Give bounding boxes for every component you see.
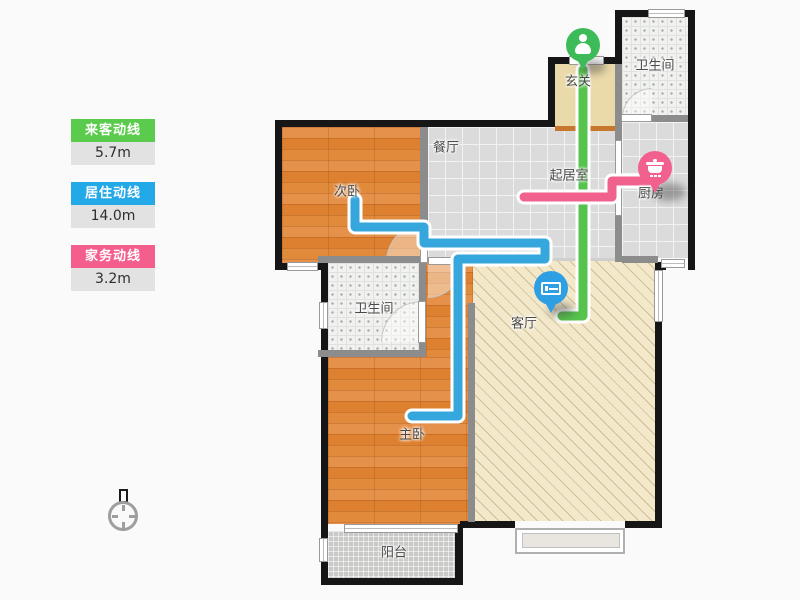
legend-living-label: 居住动线 <box>71 182 155 205</box>
compass-circle <box>108 501 138 531</box>
legend-guest-line[interactable]: 来客动线 5.7m <box>71 119 155 165</box>
entrance-marker[interactable] <box>566 28 600 74</box>
legend-living-line[interactable]: 居住动线 14.0m <box>71 182 155 228</box>
legend-living-length: 14.0m <box>71 205 155 228</box>
bed-icon <box>534 271 568 305</box>
legend-guest-length: 5.7m <box>71 142 155 165</box>
pot-icon <box>638 151 672 185</box>
floor-plan-app: 来客动线 5.7m 居住动线 14.0m 家务动线 3.2m <box>0 0 800 600</box>
room-label-bathroom-top: 卫生间 <box>635 55 674 74</box>
room-label-dining: 餐厅 <box>433 137 459 156</box>
living-route-marker[interactable] <box>534 271 568 317</box>
room-label-bathroom-mid: 卫生间 <box>354 298 393 317</box>
legend-housework-line[interactable]: 家务动线 3.2m <box>71 245 155 291</box>
legend-housework-length: 3.2m <box>71 268 155 291</box>
legend-guest-label: 来客动线 <box>71 119 155 142</box>
kitchen-marker[interactable] <box>638 151 672 197</box>
room-label-second-bedroom: 次卧 <box>334 181 360 200</box>
room-label-master-bedroom: 主卧 <box>399 424 425 443</box>
legend-housework-label: 家务动线 <box>71 245 155 268</box>
person-icon <box>566 28 600 62</box>
room-label-living-hall: 起居室 <box>549 165 588 184</box>
room-label-balcony: 阳台 <box>381 542 407 561</box>
